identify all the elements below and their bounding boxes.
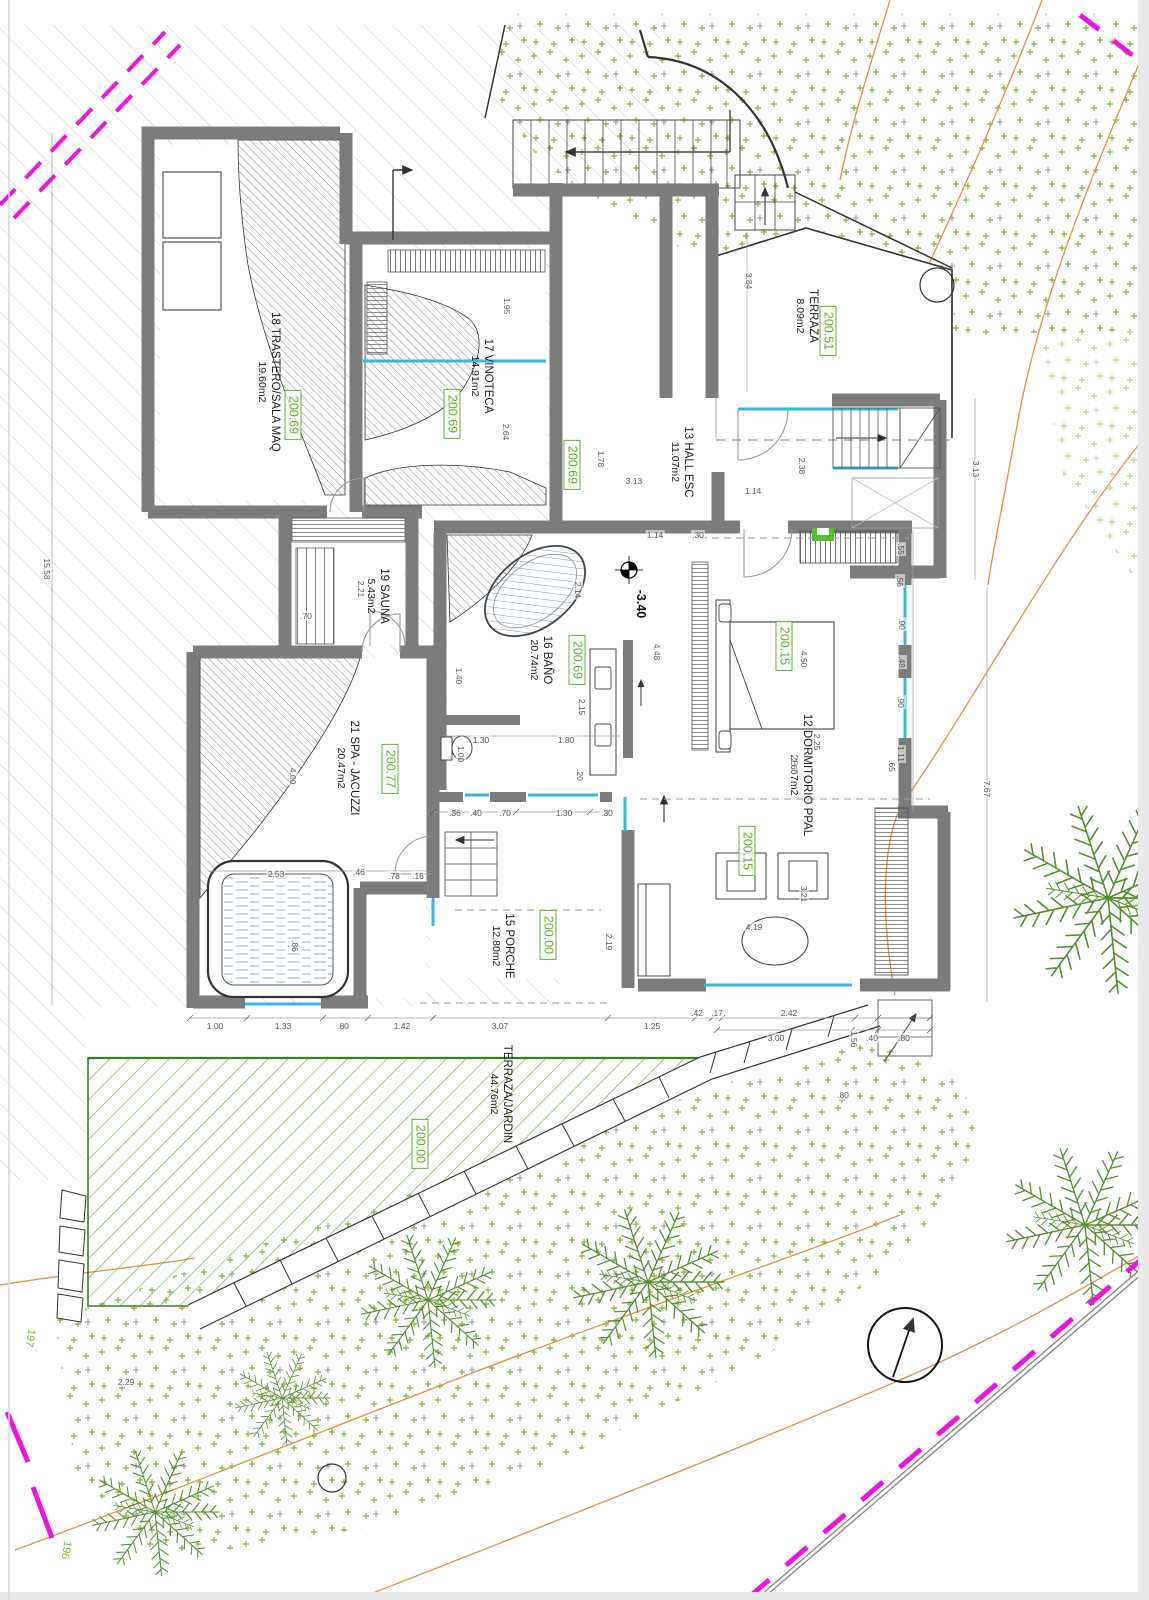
bed: [716, 600, 834, 752]
floor-plan-drawing: [0, 0, 1149, 1600]
north-arrow: [868, 1308, 942, 1382]
floor-plan-sheet: 18 TRASTERO/SALA MAQ 19.60m2 17 VINOTECA…: [0, 0, 1149, 1600]
armchair: [716, 853, 766, 899]
oval-table: [742, 917, 808, 965]
wc: [441, 736, 472, 760]
vanity: [590, 649, 616, 775]
sauna-bench-top: [292, 518, 405, 542]
shelf-band: [692, 562, 708, 750]
palm-tree: [1012, 803, 1149, 995]
louver-screen: [875, 808, 908, 975]
jacuzzi: [208, 861, 348, 997]
machine-unit: [163, 172, 221, 238]
sauna-bench-side: [296, 548, 334, 644]
armchair: [778, 853, 828, 899]
machine-unit: [163, 242, 221, 310]
sofa: [638, 884, 670, 976]
wine-rack: [388, 250, 545, 272]
window-gaps: [463, 791, 600, 803]
wine-rack-side: [367, 282, 387, 354]
